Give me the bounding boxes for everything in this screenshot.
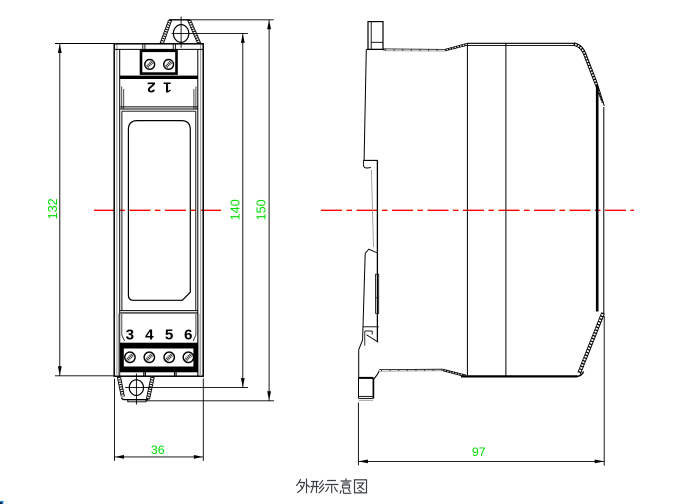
svg-text:4: 4: [145, 327, 154, 344]
svg-text:1: 1: [163, 78, 172, 95]
svg-text:36: 36: [151, 443, 165, 457]
svg-text:6: 6: [184, 327, 192, 344]
svg-text:140: 140: [229, 199, 243, 220]
svg-text:97: 97: [472, 445, 486, 459]
svg-text:2: 2: [147, 78, 155, 95]
svg-text:3: 3: [126, 327, 134, 344]
svg-text:5: 5: [165, 327, 174, 344]
svg-text:150: 150: [254, 199, 268, 220]
svg-text:132: 132: [46, 198, 60, 219]
